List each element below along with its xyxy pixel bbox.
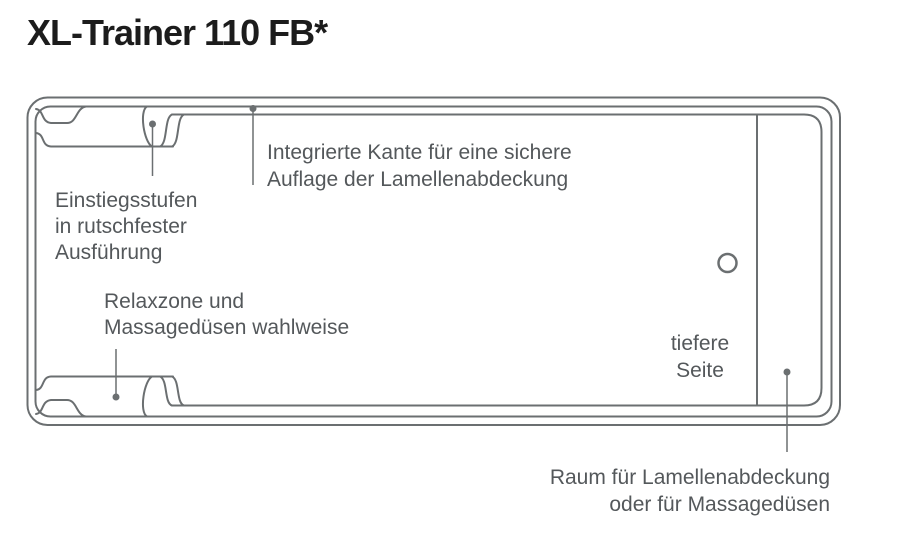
leader-dot-cover-space — [784, 369, 791, 376]
label-entry-steps-line2: in rutschfester — [55, 214, 197, 240]
pool-fitting-circle — [719, 254, 737, 272]
label-cover-space-line2: oder für Massagedüsen — [498, 491, 830, 518]
label-entry-steps: Einstiegsstufen in rutschfester Ausführu… — [55, 188, 197, 266]
label-deeper-side: tiefere Seite — [650, 330, 750, 384]
label-integrated-edge-line1: Integrierte Kante für eine sichere — [267, 139, 572, 166]
leader-dot-entry-steps — [149, 121, 156, 128]
entry-step-bottom-wall-a — [143, 377, 152, 417]
entry-step-top-wall-b — [160, 115, 172, 147]
pool-diagram — [0, 0, 900, 533]
label-deeper-side-line1: tiefere — [650, 330, 750, 357]
leader-dot-relax-zone — [113, 394, 120, 401]
label-cover-space-line1: Raum für Lamellenabdeckung — [498, 464, 830, 491]
entry-step-bottom-wall-b — [160, 377, 172, 406]
label-cover-space: Raum für Lamellenabdeckung oder für Mass… — [498, 464, 830, 518]
entry-step-bottom-wall-c — [172, 377, 184, 406]
label-relax-zone-line1: Relaxzone und — [104, 289, 349, 315]
entry-step-bottom-2 — [36, 377, 173, 391]
label-relax-zone-line2: Massagedüsen wahlweise — [104, 315, 349, 341]
label-relax-zone: Relaxzone und Massagedüsen wahlweise — [104, 289, 349, 341]
label-integrated-edge-line2: Auflage der Lamellenabdeckung — [267, 166, 572, 193]
leader-dot-integrated-edge — [250, 105, 257, 112]
label-integrated-edge: Integrierte Kante für eine sichere Aufla… — [267, 139, 572, 193]
label-entry-steps-line1: Einstiegsstufen — [55, 188, 197, 214]
entry-steps-top-drawing — [36, 107, 184, 147]
label-entry-steps-line3: Ausführung — [55, 240, 197, 266]
label-deeper-side-line2: Seite — [650, 357, 750, 384]
pool-diagram-page: XL-Trainer 110 FB* — [0, 0, 900, 533]
entry-step-top-wall-c — [172, 115, 184, 147]
entry-steps-bottom-drawing — [36, 377, 184, 417]
